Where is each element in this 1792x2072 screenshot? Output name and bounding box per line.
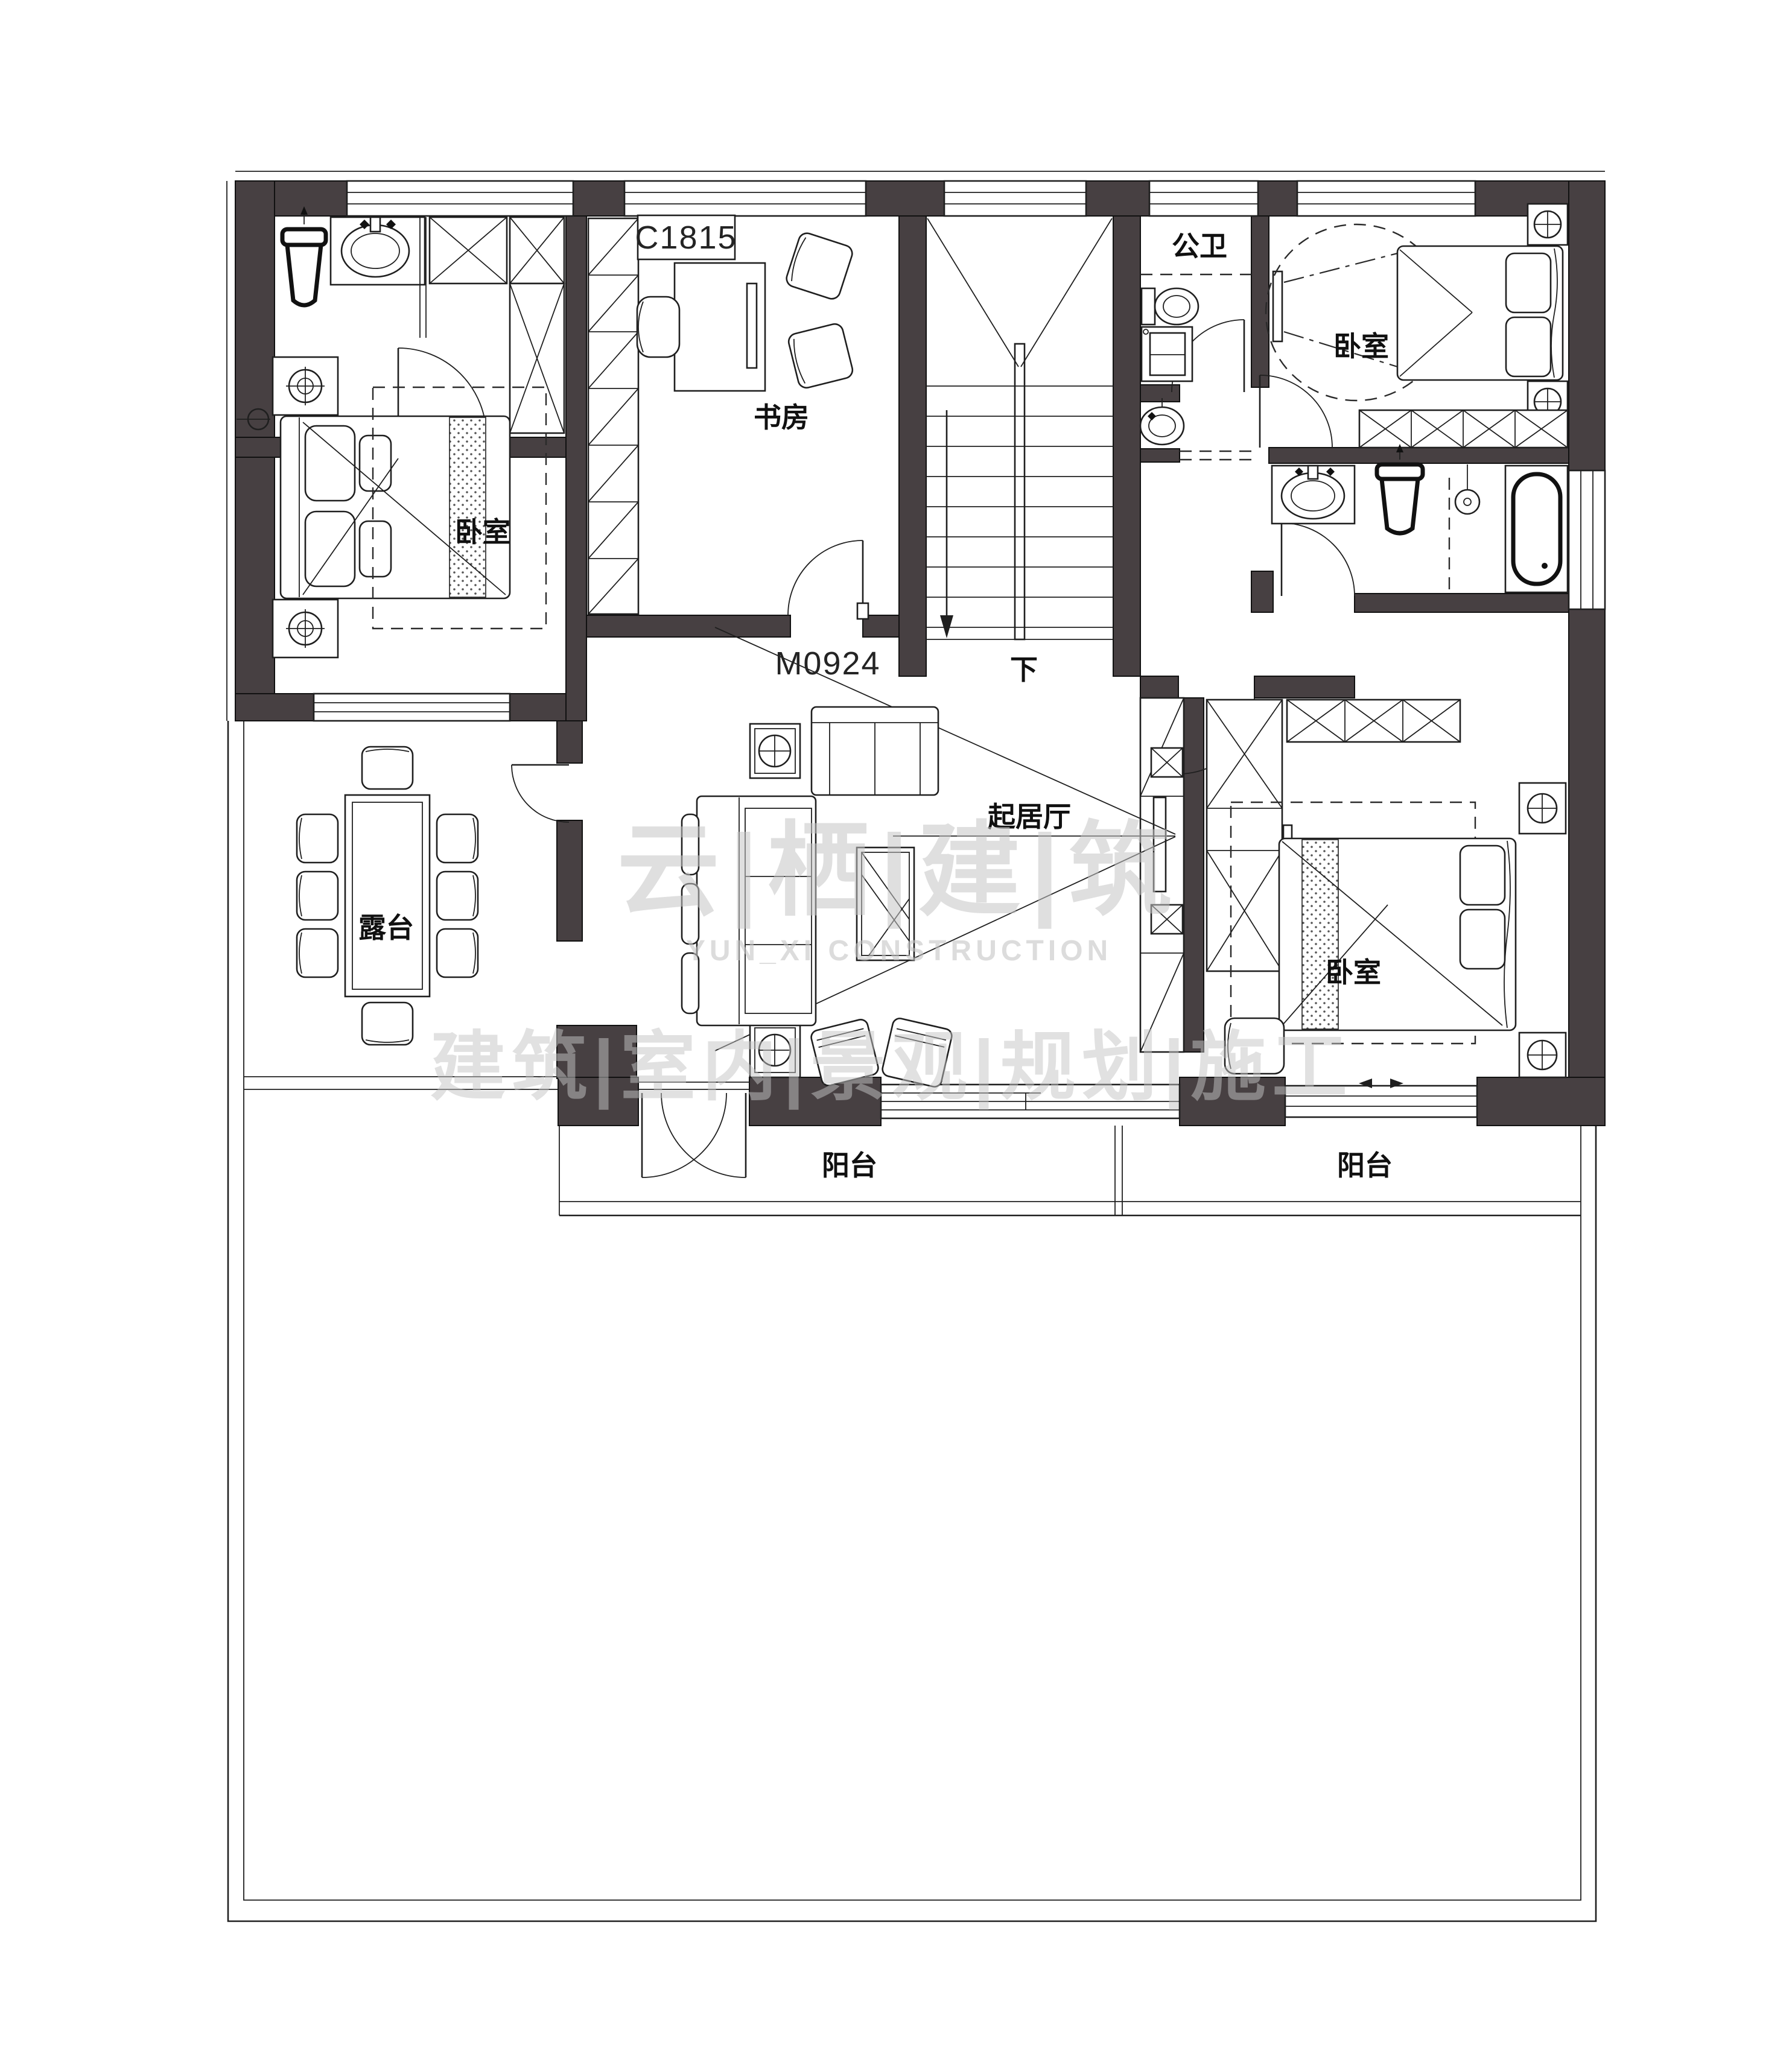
shower-box-icon	[430, 217, 507, 284]
watermark-services: 建筑|室内|景观|规划|施工	[430, 1025, 1353, 1110]
closet-column-icon	[1207, 700, 1282, 971]
sink-icon	[331, 217, 425, 285]
lounge-chair-icon	[787, 322, 854, 390]
side-table-icon	[750, 724, 800, 778]
floor-plan-page: 卧室 书房 公卫 卧室 起居厅 卧室 露台 阳台 阳台 下 C1815 M092…	[0, 0, 1792, 2072]
cabinet-tall-icon	[510, 217, 564, 433]
window-top-4	[1149, 181, 1258, 216]
room-label-bedroom-left: 卧室	[455, 516, 510, 548]
bookshelf-icon	[588, 218, 638, 614]
terrace	[297, 747, 478, 1045]
nightstand-icon	[1528, 204, 1568, 245]
window-top-5	[1297, 181, 1475, 216]
nightstand-icon	[273, 357, 338, 415]
dining-chair-icon	[297, 929, 338, 977]
room-label-study: 书房	[754, 402, 809, 433]
bathtub-icon	[1505, 466, 1568, 592]
toilet-icon	[1142, 288, 1198, 325]
dining-chair-icon	[437, 929, 478, 977]
door-code-label: M0924	[775, 645, 880, 682]
window-top-2-c1815	[624, 181, 866, 216]
nightstand-icon	[1519, 1033, 1566, 1077]
desk-icon	[637, 263, 765, 391]
dining-chair-icon	[437, 872, 478, 920]
sink-icon	[1140, 398, 1184, 445]
stairs-down-label: 下	[1010, 654, 1038, 685]
window-top-1	[347, 181, 573, 216]
window-code-label: C1815	[635, 220, 737, 256]
study	[588, 215, 854, 614]
nightstand-icon	[273, 600, 338, 657]
dining-chair-icon	[297, 872, 338, 920]
bed-icon	[1279, 838, 1516, 1030]
window-top-3	[944, 181, 1086, 216]
floor-plan-drawing: 卧室 书房 公卫 卧室 起居厅 卧室 露台 阳台 阳台 下 C1815 M092…	[0, 0, 1792, 2072]
watermark-brand-en: YUN_XI CONSTRUCTION	[686, 935, 1112, 967]
dining-chair-icon	[437, 814, 478, 863]
watermark-brand-cn: 云|栖|建|筑	[617, 814, 1181, 929]
nightstand-icon	[1519, 783, 1566, 834]
shower-icon	[1449, 464, 1479, 594]
bedroom-top-right	[1266, 204, 1568, 448]
dining-table-icon	[345, 795, 430, 996]
room-label-bedroom-tr: 卧室	[1333, 331, 1389, 362]
toilet-icon	[282, 206, 326, 305]
sofa-top-icon	[812, 707, 938, 795]
stairs-down-arrow	[940, 410, 953, 638]
bed-icon	[1397, 246, 1563, 380]
wardrobe-icon	[1359, 410, 1568, 448]
staircase	[926, 218, 1113, 639]
washing-machine-icon	[1142, 327, 1192, 381]
lounge-chair-icon	[784, 231, 854, 301]
bed-icon	[281, 416, 510, 598]
desk-chair-icon	[637, 297, 679, 357]
room-label-guest-bath: 公卫	[1172, 230, 1227, 262]
sink-icon	[1272, 466, 1355, 524]
dining-chair-icon	[362, 1003, 413, 1045]
tv-icon	[1273, 271, 1282, 341]
wardrobe-icon	[1287, 700, 1460, 742]
window-ensuite	[1569, 470, 1605, 609]
room-label-terrace: 露台	[358, 912, 414, 943]
dining-chair-icon	[362, 747, 413, 789]
dining-chair-icon	[297, 814, 338, 863]
room-label-bedroom-br: 卧室	[1326, 957, 1381, 988]
guest-bath	[1140, 274, 1251, 445]
room-label-balcony-left: 阳台	[822, 1150, 877, 1181]
bedroom-left	[273, 357, 546, 657]
room-label-balcony-right: 阳台	[1337, 1150, 1393, 1181]
ensuite-bath	[1272, 444, 1568, 594]
window-bedroom-left	[314, 694, 510, 721]
